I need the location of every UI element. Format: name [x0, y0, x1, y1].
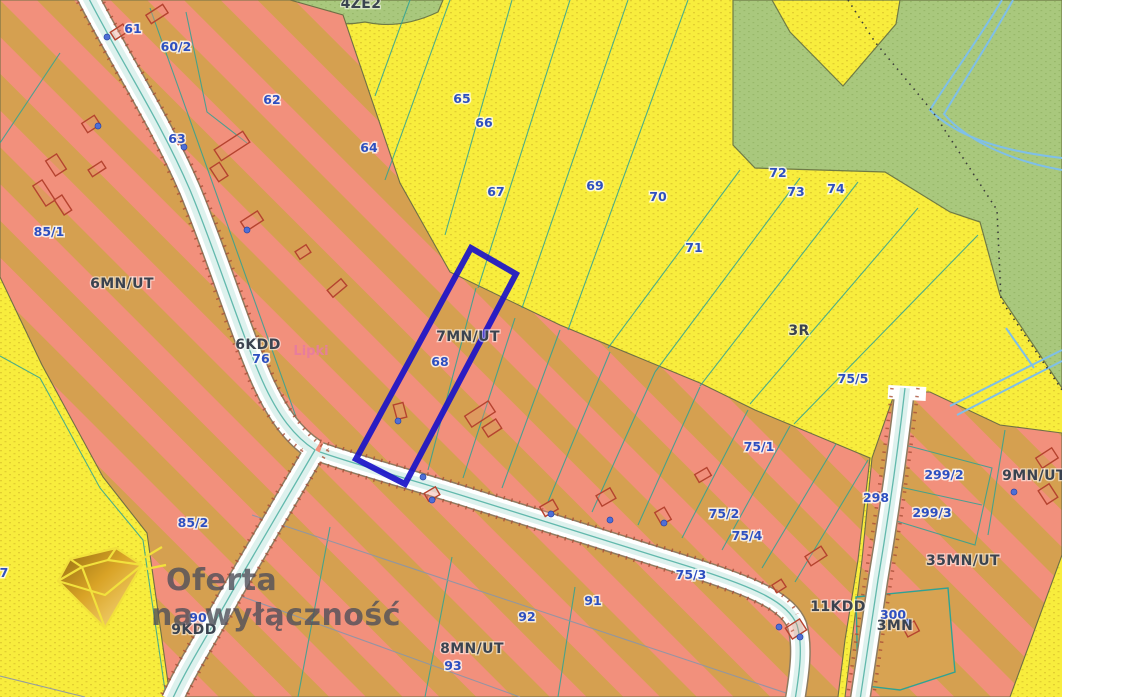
parcel-label: 75/5	[838, 371, 869, 386]
parcel-label: 61	[124, 21, 141, 36]
parcel-label: 69	[586, 178, 603, 193]
parcel-label: 62	[263, 92, 280, 107]
place-name-labels: Lipki	[293, 344, 328, 359]
zone-label: 4ZE2	[341, 0, 382, 12]
parcel-label: 65	[453, 91, 470, 106]
parcel-label: 64	[360, 140, 378, 155]
map-viewport[interactable]: 6160/262636465666769707172737485/185/276…	[0, 0, 1145, 697]
zone-label: 9MN/UT	[1002, 468, 1062, 484]
parcel-label: 70	[649, 189, 667, 204]
parcel-label: 7	[0, 565, 8, 580]
place-label: Lipki	[293, 344, 328, 359]
parcel-label: 75/3	[676, 567, 707, 582]
zone-label: 7MN/UT	[436, 329, 500, 345]
parcel-label: 93	[444, 658, 461, 673]
parcel-label: 75/2	[709, 506, 740, 521]
zoning-map-canvas[interactable]: 6160/262636465666769707172737485/185/276…	[0, 0, 1062, 697]
parcel-label: 68	[431, 354, 448, 369]
parcel-label: 67	[487, 184, 504, 199]
zone-label: 9KDD	[171, 622, 216, 638]
zone-label: 3R	[788, 323, 809, 339]
parcel-label: 299/2	[924, 467, 963, 482]
zone-label: 6KDD	[235, 337, 280, 353]
parcel-label: 92	[518, 609, 535, 624]
parcel-label: 91	[584, 593, 601, 608]
parcel-label: 75/1	[744, 439, 775, 454]
parcel-label: 63	[168, 131, 185, 146]
zone-label: 11KDD	[810, 599, 866, 615]
parcel-label: 71	[685, 240, 702, 255]
parcel-label: 72	[769, 165, 786, 180]
parcel-label: 76	[252, 351, 270, 366]
zone-label: 8MN/UT	[440, 641, 504, 657]
zone-label: 3MN	[877, 618, 914, 634]
parcel-label: 299/3	[912, 505, 951, 520]
parcel-label: 73	[787, 184, 804, 199]
parcel-label: 66	[475, 115, 493, 130]
parcel-label: 60/2	[161, 39, 192, 54]
zone-label: 6MN/UT	[90, 276, 154, 292]
parcel-label: 85/1	[34, 224, 65, 239]
parcel-label: 75/4	[732, 528, 763, 543]
parcel-label: 74	[827, 181, 845, 196]
zone-label: 35MN/UT	[926, 553, 1000, 569]
parcel-label: 85/2	[178, 515, 209, 530]
parcel-label: 298	[863, 490, 889, 505]
